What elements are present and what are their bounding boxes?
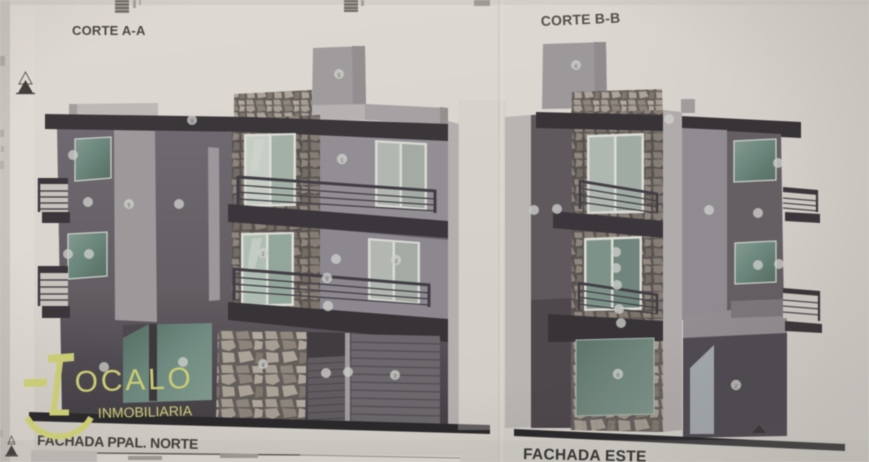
svg-text:OCALO: OCALO <box>74 362 194 399</box>
svg-text:INMOBILIARIA: INMOBILIARIA <box>98 403 193 421</box>
